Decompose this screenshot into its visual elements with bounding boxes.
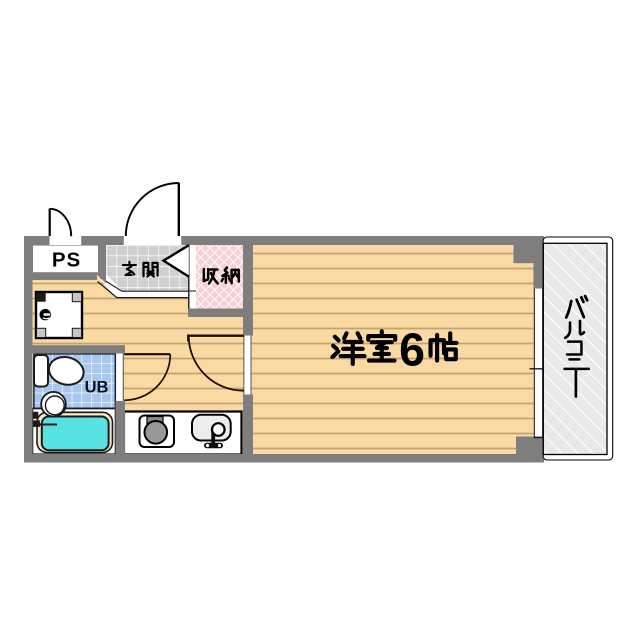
svg-text:UB: UB — [85, 379, 109, 397]
svg-text:PS: PS — [52, 249, 81, 272]
svg-text:6: 6 — [399, 323, 425, 375]
